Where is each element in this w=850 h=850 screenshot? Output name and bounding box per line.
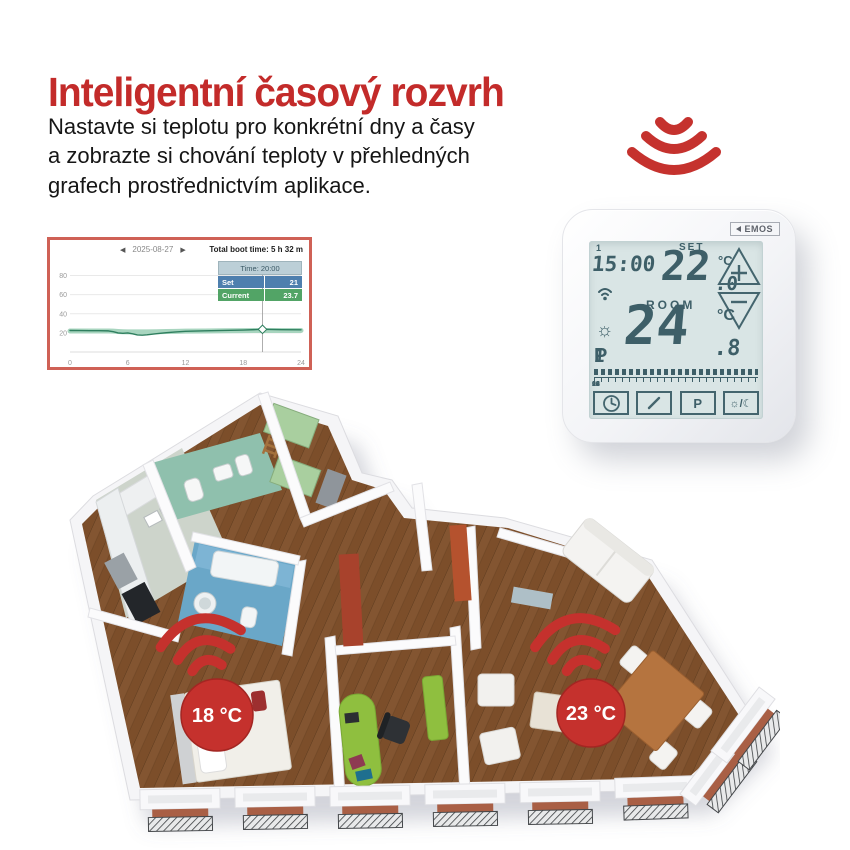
brand-logo: EMOS [730,222,780,236]
app-chart-card: ◀ 2025-08-27 ▶ Total boot time: 5 h 32 m… [47,237,312,370]
svg-text:80: 80 [59,273,67,280]
room-temperature-decimal: .8 [713,336,742,361]
tooltip-set-value: 21 [265,276,302,288]
tooltip-set-row: Set 21 [218,276,302,288]
tooltip-current-value: 23.7 [265,289,302,301]
bedroom-temperature-label: 18 °C [192,705,242,727]
svg-text:24: 24 [297,360,305,367]
schedule-timeline-bar [594,369,758,375]
intro-line-2: a zobrazte si chování teploty v přehledn… [48,143,470,168]
apartment-floorplan: 18 °C 23 °C [60,378,780,850]
svg-text:0: 0 [68,360,72,367]
page: { "header": { "title": "Inteligentní čas… [0,0,850,850]
armchair-1 [478,674,514,706]
boot-time-label: Total boot time: 5 h 32 m [209,245,303,254]
intro-line-1: Nastavte si teplotu pro konkrétní dny a … [48,114,475,139]
page-title: Inteligentní časový rozvrh [48,69,504,116]
date-navigation: ◀ 2025-08-27 ▶ [120,245,186,254]
intro-line-3: grafech prostřednictvím aplikace. [48,173,371,198]
tooltip-current-row: Current 23.7 [218,289,302,301]
display-wifi-icon [594,286,616,302]
svg-text:40: 40 [59,311,67,318]
svg-text:20: 20 [59,330,67,337]
intro-paragraph: Nastavte si teplotu pro konkrétní dny a … [48,112,518,200]
wifi-signal-icon [612,110,736,198]
laptop [344,712,359,723]
program-indicator: P1 [594,345,605,368]
tooltip-current-label: Current [218,289,264,301]
sun-mode-icon: ☼ [596,320,613,342]
increase-button[interactable] [717,246,761,287]
room-temperature: 24 [622,299,692,353]
brand-arrow-icon [736,226,741,232]
toilet-2 [240,606,258,628]
clock-time: 15:00 [591,252,656,276]
svg-text:12: 12 [182,360,190,367]
chart-date: 2025-08-27 [132,245,173,254]
tooltip-time: Time: 20:00 [218,261,302,275]
livingroom-temperature-label: 23 °C [566,703,616,725]
next-day-button[interactable]: ▶ [180,246,185,254]
svg-text:60: 60 [59,292,67,299]
tooltip-set-label: Set [218,276,264,288]
room-degree-unit: °C [717,307,735,325]
armchair-2 [479,727,521,766]
prev-day-button[interactable]: ◀ [120,246,125,254]
set-temperature: 22 [659,246,712,287]
svg-text:6: 6 [126,360,130,367]
brand-text: EMOS [744,224,773,234]
chart-tooltip: Time: 20:00 Set 21 Current 23.7 [218,261,302,301]
svg-text:18: 18 [239,360,247,367]
